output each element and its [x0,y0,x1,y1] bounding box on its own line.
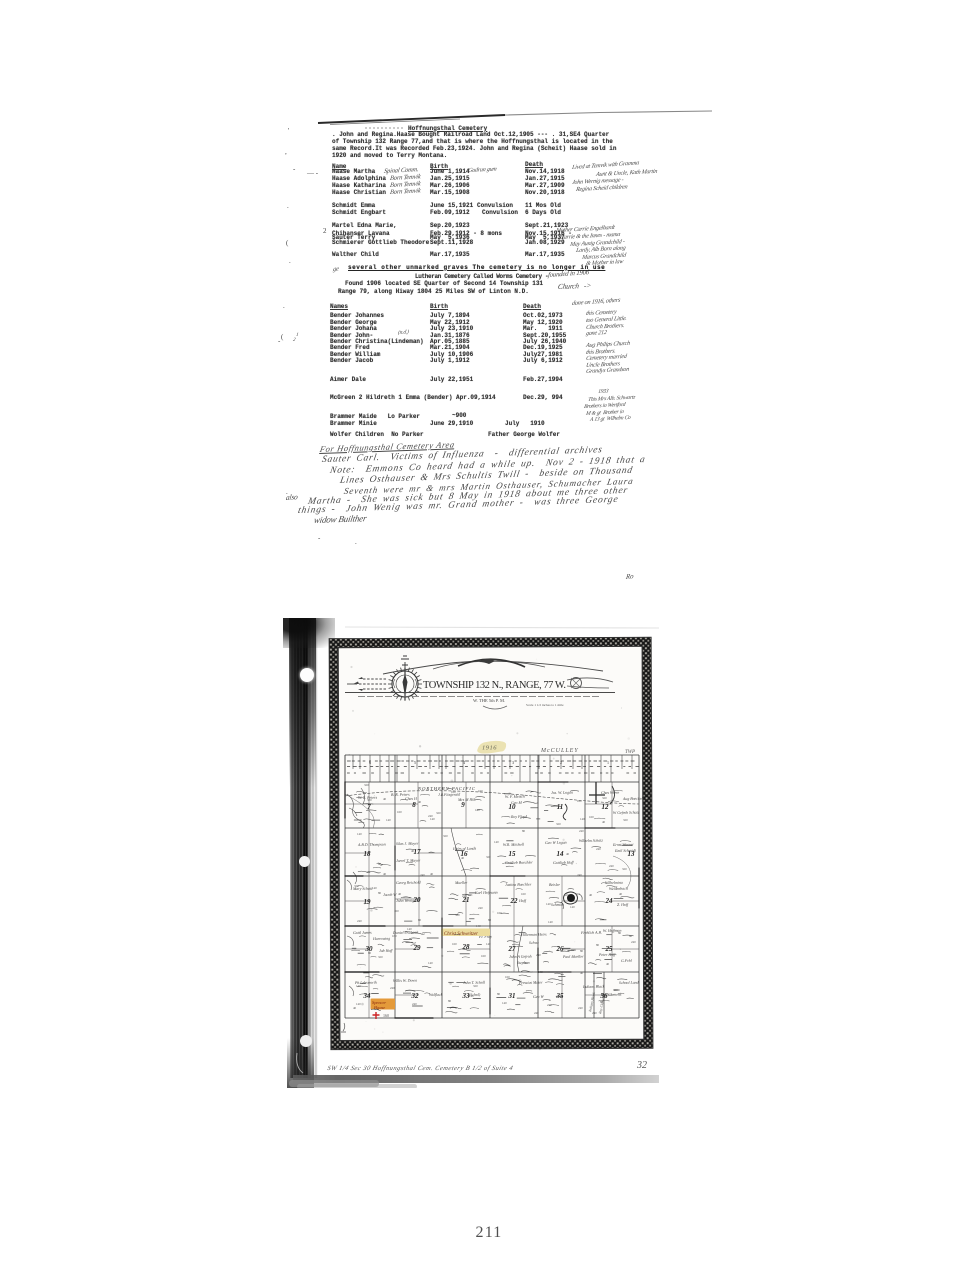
svg-text:22: 22 [510,897,519,905]
svg-text:320: 320 [575,892,580,896]
svg-text:Ernst Werner: Ernst Werner [612,843,634,847]
svg-text:14: 14 [557,850,565,858]
svg-text:80: 80 [378,891,382,895]
svg-text:320: 320 [622,867,627,871]
svg-text:320: 320 [443,834,448,838]
svg-text:40: 40 [566,852,570,856]
svg-text:40: 40 [589,893,593,897]
svg-text:Jacob W: Jacob W [383,893,397,897]
svg-text:J.R.Fitzgerald: J.R.Fitzgerald [438,793,460,797]
svg-text:320: 320 [486,855,491,859]
svg-text:School Land: School Land [619,981,639,985]
svg-text:40: 40 [461,856,465,860]
svg-text:240: 240 [534,1011,539,1015]
svg-text:160: 160 [397,810,402,814]
svg-text:40: 40 [383,797,387,801]
svg-text:80: 80 [522,829,526,833]
svg-text:Silas J. Mayer: Silas J. Mayer [396,842,419,846]
svg-text:W Gefroh Schatz: W Gefroh Schatz [613,811,640,815]
svg-text:Weidenbach: Weidenbach [609,887,628,891]
svg-text:140: 140 [407,927,412,931]
svg-text:40: 40 [606,962,610,966]
svg-text:160: 160 [383,1013,389,1018]
svg-text:160: 160 [505,975,510,979]
svg-text:80: 80 [629,934,633,938]
svg-text:40: 40 [383,872,387,876]
svg-text:320: 320 [523,961,528,965]
svg-text:140: 140 [372,886,377,890]
svg-text:34: 34 [363,992,372,1000]
svg-text:80: 80 [618,931,622,935]
svg-text:320: 320 [564,893,569,897]
svg-text:Z. Hoff: Z. Hoff [617,903,629,907]
svg-text:4: 4 [463,760,465,765]
svg-text:Paul Mueller: Paul Mueller [562,955,584,959]
svg-text:80: 80 [368,951,372,955]
svg-text:Wilhelmina: Wilhelmina [605,881,623,885]
svg-text:9: 9 [461,801,465,809]
svg-text:John A Gefroh: John A Gefroh [509,955,532,959]
svg-text:Mueller: Mueller [454,881,468,885]
svg-text:240: 240 [478,906,483,910]
svg-text:Roy Floyd: Roy Floyd [510,815,527,819]
svg-text:SW 1/4 Sec 30 Hoffnungsthal Ce: SW 1/4 Sec 30 Hoffnungsthal Cem. Cemeter… [327,1065,514,1072]
svg-text:140: 140 [428,961,433,965]
svg-text:32: 32 [411,992,420,1000]
svg-text:140: 140 [548,920,553,924]
svg-text:Aug Boeckel: Aug Boeckel [622,797,643,801]
svg-text:40: 40 [353,1006,357,1010]
svg-text:320: 320 [455,913,460,917]
svg-text:240: 240 [390,986,395,990]
svg-text:2: 2 [560,760,562,765]
svg-text:Justina Buechler: Justina Buechler [505,883,532,887]
svg-text:240: 240 [609,864,614,868]
svg-text:24: 24 [605,897,614,905]
svg-text:160: 160 [451,790,456,794]
svg-text:32: 32 [636,1060,647,1071]
svg-text:240: 240 [357,919,362,923]
svg-text:160: 160 [394,909,399,913]
svg-text:140: 140 [570,905,575,909]
svg-text:Emil Schmidt: Emil Schmidt [614,849,637,853]
svg-text:Mrs M Hilt: Mrs M Hilt [457,798,476,802]
svg-text:3: 3 [512,760,514,765]
svg-text:Frehlich A.B.: Frehlich A.B. [580,931,602,935]
svg-text:240: 240 [631,940,636,944]
svg-text:140: 140 [357,832,362,836]
svg-text:TWP: TWP [625,750,635,755]
svg-text:W.R. Mitchell: W.R. Mitchell [503,843,524,847]
svg-text:160: 160 [478,789,483,793]
svg-text:160: 160 [481,954,486,958]
svg-text:140: 140 [580,817,585,821]
svg-text:320: 320 [364,783,369,787]
svg-text:240: 240 [420,873,425,877]
svg-text:80: 80 [418,918,422,922]
svg-text:12: 12 [602,803,610,811]
svg-text:40: 40 [580,971,584,975]
svg-text:240: 240 [596,847,601,851]
svg-text:320: 320 [367,798,372,802]
svg-text:Schmidt: Schmidt [551,903,565,907]
svg-text:Jos. W. Logan: Jos. W. Logan [551,791,573,795]
svg-text:140: 140 [386,818,391,822]
svg-text:160: 160 [589,815,594,819]
svg-text:140: 140 [430,817,435,821]
svg-text:160: 160 [497,911,502,915]
svg-text:Chas Werre: Chas Werre [601,791,620,795]
svg-text:Geo W: Geo W [533,995,545,999]
svg-text:320: 320 [378,955,383,959]
svg-text:160: 160 [577,799,582,803]
svg-text:TOWNSHIP 132 N., RANGE, 77 W.: TOWNSHIP 132 N., RANGE, 77 W. [423,680,566,691]
svg-text:Hoff: Hoff [518,899,527,903]
svg-text:NORTHERN PACIFIC: NORTHERN PACIFIC [417,786,476,791]
svg-text:320: 320 [623,818,628,822]
svg-text:240: 240 [592,1011,597,1015]
svg-text:Hillerman Heirs: Hillerman Heirs [520,933,547,937]
svg-text:Schwz: Schwz [529,941,539,945]
svg-text:140: 140 [476,924,481,928]
svg-text:140: 140 [356,1002,361,1006]
svg-text:G.Frbl: G.Frbl [621,959,632,963]
svg-text:80: 80 [580,949,584,953]
svg-text:40: 40 [430,872,434,876]
svg-text:140: 140 [546,902,551,906]
svg-text:Peter Hoff: Peter Hoff [598,953,616,957]
svg-text:140: 140 [469,994,474,998]
svg-text:Jab Hoff: Jab Hoff [379,949,393,953]
svg-text:Karl Hofmann: Karl Hofmann [474,891,498,895]
svg-text:320: 320 [602,796,607,800]
svg-text:240: 240 [579,829,584,833]
svg-text:W. THE 5th P. M.: W. THE 5th P. M. [473,698,505,703]
svg-text:240: 240 [578,1006,583,1010]
svg-text:17: 17 [414,848,422,856]
svg-text:140: 140 [486,942,491,946]
svg-text:160: 160 [392,934,397,938]
svg-text:Beisler: Beisler [549,883,561,887]
svg-text:Chas H: Chas H [405,797,417,801]
svg-text:11: 11 [557,803,564,811]
svg-text:320: 320 [473,984,478,988]
svg-text:1: 1 [607,760,609,765]
svg-text:140: 140 [494,840,499,844]
svg-text:John Wenig etc: John Wenig etc [396,899,420,903]
svg-text:140: 140 [502,1001,507,1005]
svg-text:5: 5 [414,760,416,765]
svg-text:Geo M: Geo M [511,801,523,805]
svg-text:1916: 1916 [482,745,497,752]
svg-text:160: 160 [521,892,526,896]
svg-text:Gottl James: Gottl James [353,931,372,935]
svg-text:40: 40 [418,800,422,804]
svg-text:8: 8 [412,801,416,809]
svg-text:40: 40 [602,820,606,824]
svg-text:Georg Reichold: Georg Reichold [396,881,421,885]
svg-text:27: 27 [508,945,517,953]
svg-text:Wolflack: Wolflack [429,993,443,997]
svg-text:Indians Black: Indians Black [582,985,605,989]
svg-text:6: 6 [369,760,371,765]
svg-text:McCULLEY: McCULLEY [540,748,579,754]
svg-text:Scale 1 1/2 inches to 1 mile: Scale 1 1/2 inches to 1 mile [526,703,564,707]
svg-text:W. F. Meisch: W. F. Meisch [505,795,525,799]
svg-text:40: 40 [398,892,402,896]
svg-text:80: 80 [488,918,492,922]
svg-text:Geo W Logan: Geo W Logan [545,841,567,845]
svg-text:240: 240 [577,873,582,877]
svg-text:Christ Schweitzer: Christ Schweitzer [444,932,478,937]
svg-text:240: 240 [412,1002,417,1006]
svg-text:Willis W. Down: Willis W. Down [393,979,417,983]
svg-text:Harrowing: Harrowing [372,937,390,941]
svg-text:31: 31 [508,992,516,1000]
svg-text:320: 320 [556,822,561,826]
svg-text:15: 15 [509,850,517,858]
svg-text:160: 160 [452,942,457,946]
svg-text:80: 80 [596,943,600,947]
svg-text:19: 19 [364,898,372,906]
svg-text:A.B.D. Thompson: A.B.D. Thompson [357,843,386,848]
svg-text:80: 80 [448,999,452,1003]
svg-text:320: 320 [436,811,441,815]
svg-text:80: 80 [497,992,501,996]
svg-text:18: 18 [364,850,372,858]
svg-text:Wilhelm Schatz: Wilhelm Schatz [579,839,603,843]
svg-text:40: 40 [619,892,623,896]
